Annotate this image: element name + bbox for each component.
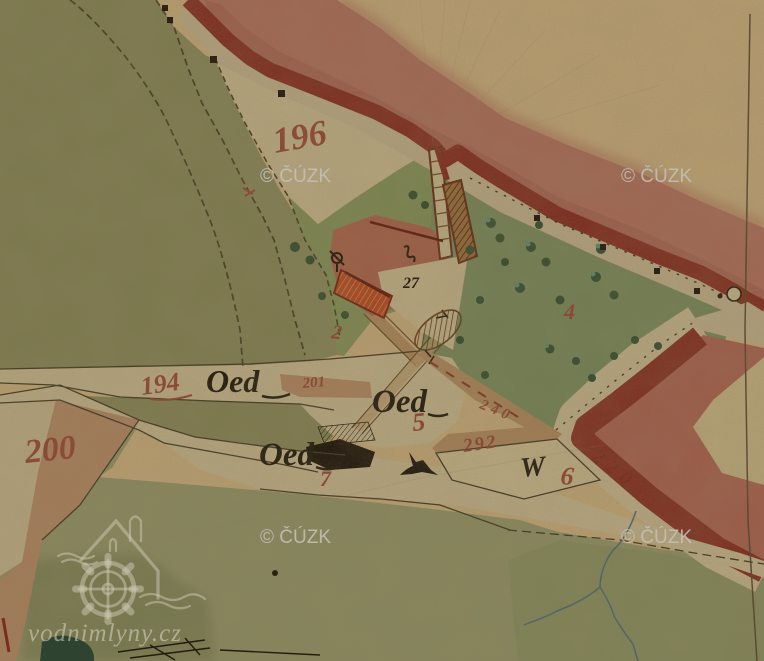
svg-text:vodnimlyny.cz: vodnimlyny.cz xyxy=(28,620,182,647)
svg-text:© ČÚZK: © ČÚZK xyxy=(260,526,331,548)
svg-text:© ČÚZK: © ČÚZK xyxy=(621,165,692,187)
svg-text:© ČÚZK: © ČÚZK xyxy=(621,526,692,548)
svg-text:© ČÚZK: © ČÚZK xyxy=(260,165,331,187)
